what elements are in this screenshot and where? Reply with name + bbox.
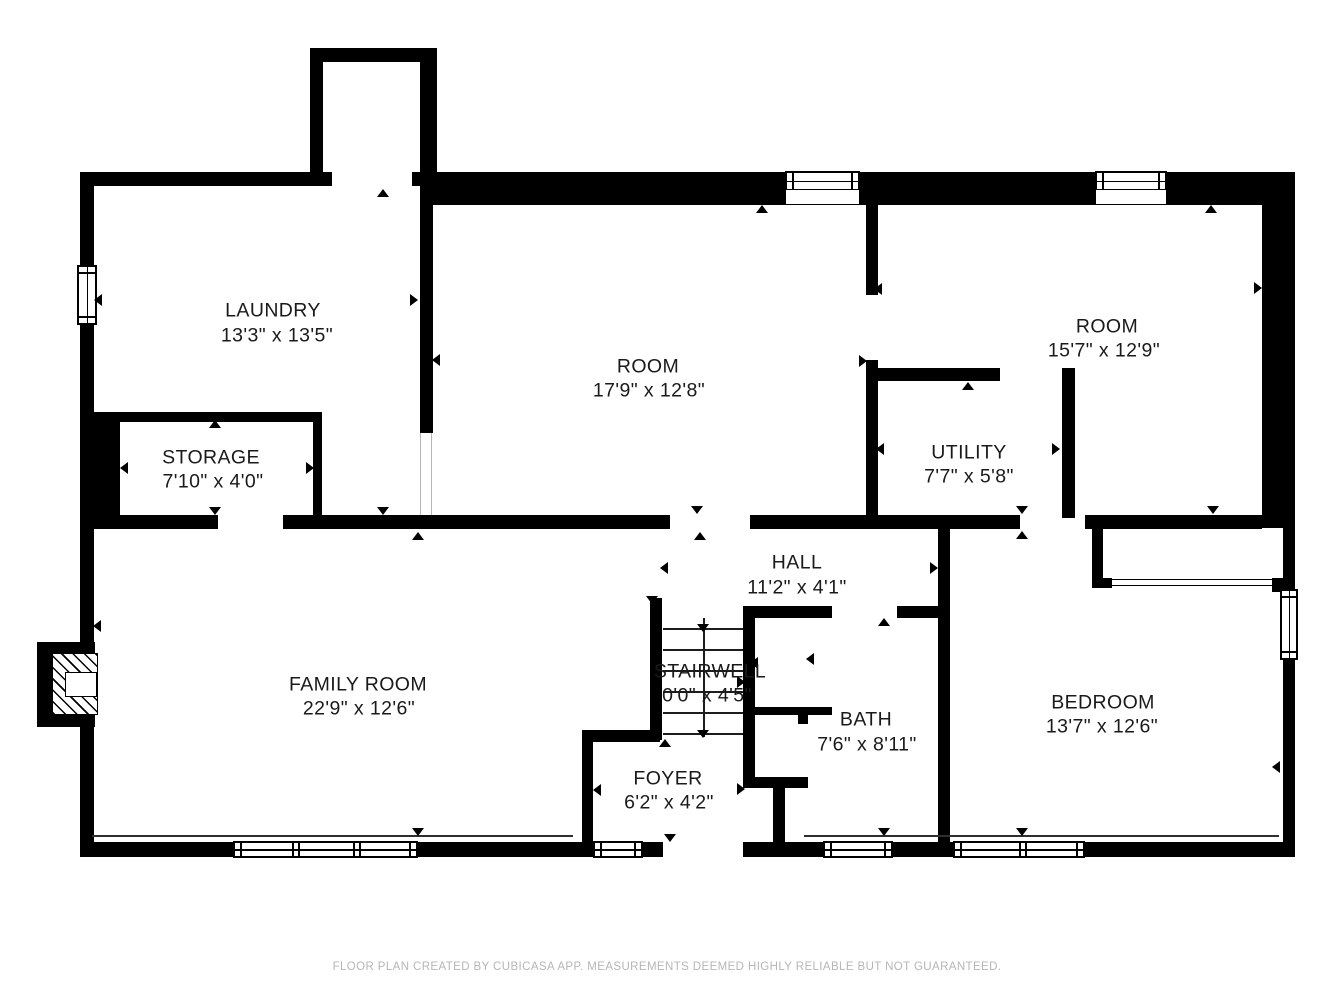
window-pane-line [825, 849, 891, 851]
room-dims-room-center: 17'9" x 12'8" [593, 380, 705, 403]
room-dims-bath: 7'6" x 8'11" [817, 734, 916, 757]
wall [866, 368, 1000, 381]
door-marker-icon [593, 784, 601, 796]
window-mullion [1019, 842, 1021, 857]
door-marker-icon [410, 294, 418, 306]
fireplace-firebox [65, 672, 97, 697]
room-label-room-right: ROOM [1076, 316, 1138, 339]
door-marker-icon [930, 562, 938, 574]
room-dims-stairwell: 0'0" x 4'5" [662, 685, 752, 708]
window-mullion [292, 842, 294, 857]
room-label-family-room: FAMILY ROOM [289, 674, 427, 697]
door-marker-icon [859, 355, 867, 367]
wall [938, 529, 950, 842]
window-sill-line [92, 835, 573, 837]
wall [743, 777, 808, 788]
window-frame-line [600, 843, 602, 856]
door-marker-icon [876, 443, 884, 455]
wall [310, 48, 437, 62]
door-marker-icon [659, 739, 671, 747]
wall [283, 515, 670, 529]
door-marker-icon [1207, 506, 1219, 514]
wall [773, 788, 785, 842]
wall [1262, 172, 1295, 528]
door-marker-icon [1205, 205, 1217, 213]
window-frame-line [240, 843, 242, 856]
wall [897, 606, 938, 618]
room-label-stairwell: STAIRWELL [654, 661, 766, 684]
room-dims-utility: 7'7" x 5'8" [924, 466, 1014, 489]
door-marker-icon [209, 420, 221, 428]
closet-sliding-door [1112, 579, 1272, 586]
window-frame-line [409, 843, 411, 856]
window-pane-line [1097, 181, 1165, 183]
door-marker-icon [694, 532, 706, 540]
wall [80, 412, 322, 422]
door-marker-icon [664, 834, 676, 842]
door-marker-icon [737, 783, 745, 795]
wall [94, 422, 120, 517]
door-marker-icon [697, 624, 709, 632]
wall [750, 515, 1020, 529]
wall [94, 515, 218, 529]
door-marker-icon [1254, 282, 1262, 294]
wall [1092, 528, 1103, 588]
wall [1283, 528, 1295, 857]
footer-disclaimer: FLOOR PLAN CREATED BY CUBICASA APP. MEAS… [333, 961, 1002, 973]
window-pane-line [787, 181, 858, 183]
window-frame-line [830, 843, 832, 856]
room-label-foyer: FOYER [633, 768, 702, 791]
wall [323, 172, 332, 186]
room-label-storage: STORAGE [162, 447, 260, 470]
wall [1062, 368, 1075, 518]
door-marker-icon [874, 283, 882, 295]
window-frame-line [1102, 173, 1104, 189]
room-dims-storage: 7'10" x 4'0" [163, 471, 264, 494]
door-marker-icon [377, 507, 389, 515]
door-marker-icon [412, 828, 424, 836]
window-mullion [1025, 842, 1027, 857]
door-marker-icon [697, 730, 709, 738]
door-marker-icon [432, 354, 440, 366]
door-marker-icon [660, 562, 668, 574]
room-label-room-center: ROOM [617, 356, 679, 379]
window-mullion [353, 842, 355, 857]
wall [1103, 578, 1112, 588]
wall [798, 715, 808, 724]
window-pane-line [87, 267, 89, 323]
window-frame-line [1076, 843, 1078, 856]
window-frame-line [1282, 596, 1296, 598]
room-dims-bedroom: 13'7" x 12'6" [1046, 716, 1158, 739]
wall [582, 730, 660, 742]
room-label-hall: HALL [772, 552, 822, 575]
wall [412, 172, 420, 186]
window-mullion [298, 842, 300, 857]
door-marker-icon [1272, 761, 1280, 773]
window-mullion [359, 842, 361, 857]
door-marker-icon [878, 828, 890, 836]
window-frame-line [792, 173, 794, 189]
floorplan-page: LAUNDRY13'3" x 13'5"STORAGE7'10" x 4'0"R… [0, 0, 1333, 1000]
room-label-bath: BATH [840, 709, 892, 732]
window-frame-line [1158, 173, 1160, 189]
door-marker-icon [209, 507, 221, 515]
wall [420, 48, 437, 205]
window-frame-line [634, 843, 636, 856]
door-marker-icon [756, 205, 768, 213]
room-dims-room-right: 15'7" x 12'9" [1048, 340, 1160, 363]
room-label-utility: UTILITY [931, 442, 1006, 465]
window-pane-line [1289, 591, 1291, 658]
wall [866, 360, 878, 518]
door-marker-icon [377, 189, 389, 197]
room-dims-family-room: 22'9" x 12'6" [303, 698, 415, 721]
window-recess [786, 190, 859, 204]
wall [743, 606, 832, 618]
door-marker-icon [93, 620, 101, 632]
window-recess [1096, 190, 1166, 204]
door-jamb-line [420, 433, 421, 515]
door-marker-icon [878, 618, 890, 626]
door-marker-icon [120, 462, 128, 474]
door-marker-icon [962, 382, 974, 390]
window-frame-line [960, 843, 962, 856]
wall [582, 730, 593, 842]
wall [313, 412, 322, 517]
wall [866, 205, 878, 295]
wall [420, 186, 433, 433]
room-label-bedroom: BEDROOM [1051, 692, 1155, 715]
wall [755, 707, 832, 715]
wall [1085, 515, 1262, 529]
door-marker-icon [306, 462, 314, 474]
door-marker-icon [94, 294, 102, 306]
window-frame-line [884, 843, 886, 856]
window-sill-line [804, 835, 1279, 837]
room-dims-foyer: 6'2" x 4'2" [624, 792, 714, 815]
door-marker-icon [806, 653, 814, 665]
door-marker-icon [1016, 531, 1028, 539]
wall [310, 48, 323, 186]
window-pane-line [235, 849, 416, 851]
room-dims-laundry: 13'3" x 13'5" [221, 325, 333, 348]
window-frame-line [1282, 651, 1296, 653]
door-marker-icon [1052, 443, 1060, 455]
door-marker-icon [646, 596, 658, 604]
door-marker-icon [691, 506, 703, 514]
room-dims-hall: 11'2" x 4'1" [747, 577, 846, 600]
door-jamb-line [431, 433, 432, 515]
door-marker-icon [1016, 506, 1028, 514]
room-label-laundry: LAUNDRY [225, 300, 321, 323]
door-marker-icon [412, 532, 424, 540]
window-frame-line [79, 272, 95, 274]
door-marker-icon [1016, 828, 1028, 836]
window-frame-line [851, 173, 853, 189]
wall [80, 172, 310, 186]
window-frame-line [79, 316, 95, 318]
